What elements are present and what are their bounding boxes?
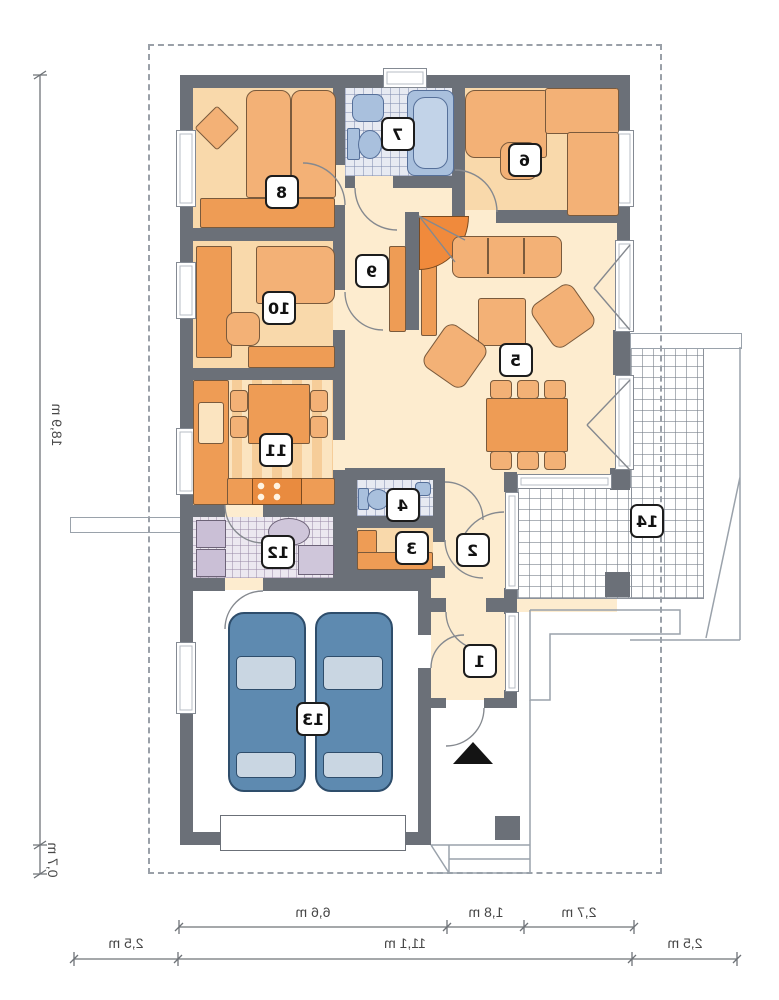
room-label-4: 4 xyxy=(386,488,420,522)
dim-bottom-lower-1: 2,5 m xyxy=(108,935,143,951)
dim-bottom-upper-2: 1,8 m xyxy=(468,904,503,920)
site-outlines xyxy=(431,347,740,873)
room-label-3: 3 xyxy=(395,531,429,565)
room-label-5: 5 xyxy=(499,343,533,377)
room-label-9: 9 xyxy=(355,254,389,288)
dim-bottom-upper-3: 2,7 m xyxy=(561,904,596,920)
room-label-8: 8 xyxy=(265,175,299,209)
room-label-14: 14 xyxy=(630,504,664,538)
dim-left-total: 18,9 m xyxy=(49,404,65,447)
dim-bottom-lower-3: 2,5 m xyxy=(667,935,702,951)
dim-left-offset: 0,7 m xyxy=(45,842,61,877)
room-label-2: 2 xyxy=(456,533,490,567)
dim-bottom-upper-1: 6,6 m xyxy=(295,904,330,920)
floor-plan-canvas: 1 2 3 4 5 6 7 8 9 10 11 12 13 14 18,9 m … xyxy=(0,0,779,1000)
dim-bottom-lower-2: 11,1 m xyxy=(384,935,426,951)
room-label-13: 13 xyxy=(296,702,330,736)
room-label-7: 7 xyxy=(381,117,415,151)
room-label-10: 10 xyxy=(262,291,296,325)
room-label-11: 11 xyxy=(259,433,293,467)
room-label-12: 12 xyxy=(261,535,295,569)
room-label-1: 1 xyxy=(463,644,497,678)
room-label-6: 6 xyxy=(508,143,542,177)
